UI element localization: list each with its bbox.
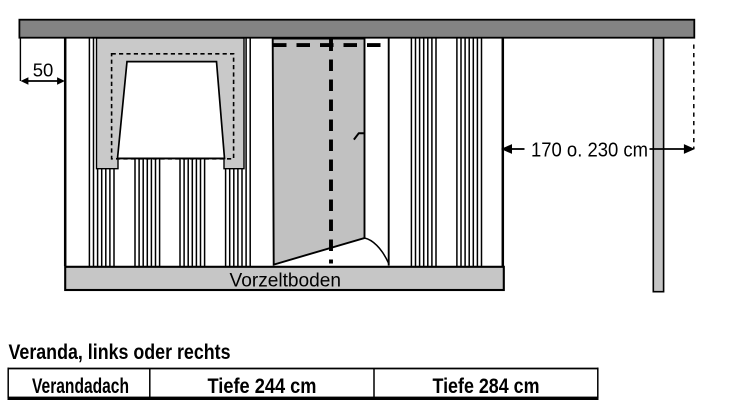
svg-text:170 o. 230 cm: 170 o. 230 cm	[531, 139, 648, 162]
svg-text:Verandadach: Verandadach	[32, 375, 129, 398]
svg-text:Tiefe 244 cm: Tiefe 244 cm	[208, 375, 317, 398]
svg-text:Vorzeltboden: Vorzeltboden	[230, 271, 342, 292]
svg-text:Veranda, links oder rechts: Veranda, links oder rechts	[9, 341, 231, 364]
svg-text:Tiefe 284 cm: Tiefe 284 cm	[433, 375, 540, 398]
svg-text:50: 50	[33, 59, 54, 80]
